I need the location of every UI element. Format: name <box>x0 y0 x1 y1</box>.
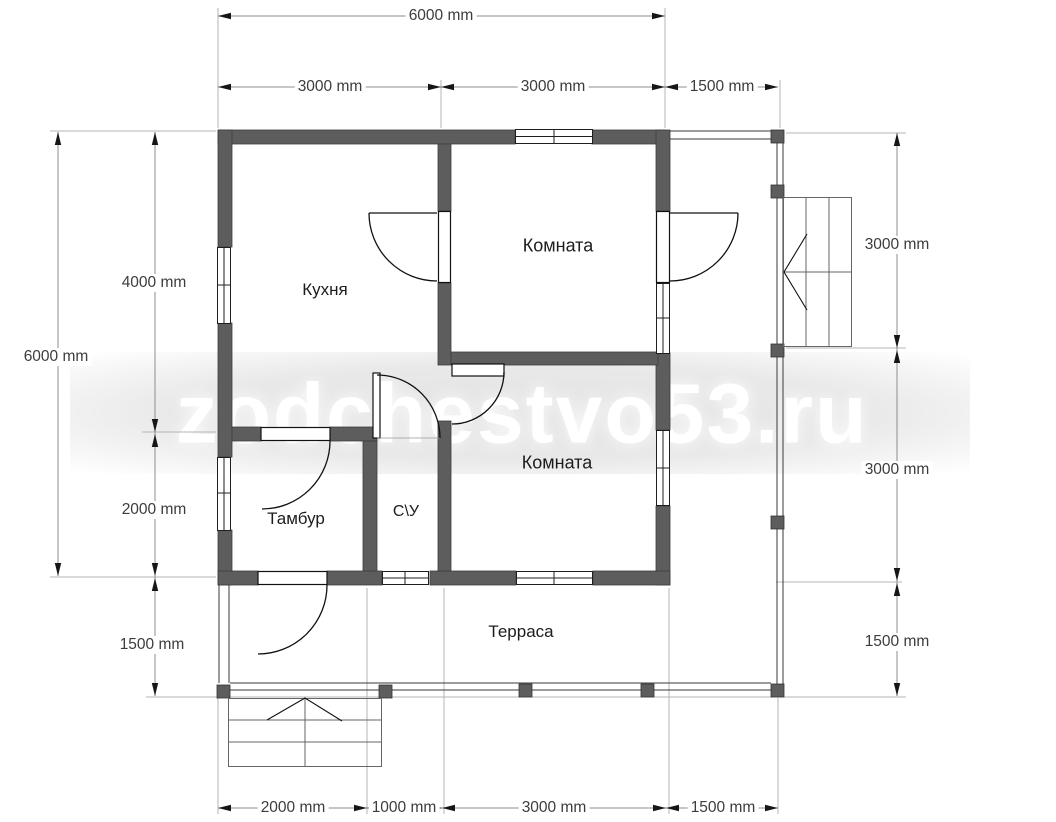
window-bathroom-bottom <box>382 571 429 585</box>
window-bedroom-mid-bottom <box>516 571 593 585</box>
window-bedroom-top <box>515 129 593 144</box>
dim-top-total: 6000 mm <box>406 7 477 25</box>
window-kitchen-left <box>217 247 231 324</box>
dim-right-seg2: 3000 mm <box>862 461 933 479</box>
dim-left-seg1: 4000 mm <box>119 274 190 292</box>
window-bedroom-mid-right <box>656 430 670 506</box>
dim-bottom-seg4: 1500 mm <box>688 799 759 817</box>
dim-bottom-seg3: 3000 mm <box>519 799 590 817</box>
door-bathroom <box>373 373 440 438</box>
door-kitchen-bedroom-top <box>369 212 451 283</box>
door-bedroom-top-terrace <box>657 212 739 283</box>
dim-left-total: 6000 mm <box>21 348 92 366</box>
room-label-bedroom-top: Комната <box>523 236 593 257</box>
dim-bottom-seg1: 2000 mm <box>258 799 329 817</box>
room-label-kitchen: Кухня <box>302 280 348 300</box>
stairs-bottom <box>228 698 382 767</box>
floor-plan-page: zodchestvo53.ru <box>0 0 1056 822</box>
door-kitchen-bedroom-mid <box>452 364 504 424</box>
dim-right-seg1: 3000 mm <box>862 236 933 254</box>
dim-bottom-seg2: 1000 mm <box>369 799 440 817</box>
door-vestibule-terrace <box>258 572 327 655</box>
room-label-bedroom-mid: Комната <box>522 453 592 474</box>
room-label-vestibule: Тамбур <box>267 509 325 529</box>
dim-top-seg2: 3000 mm <box>518 78 589 96</box>
dim-left-seg3: 1500 mm <box>117 636 188 654</box>
room-label-bathroom: С\У <box>393 503 419 521</box>
dim-right-seg3: 1500 mm <box>862 633 933 651</box>
window-bedroom-top-right <box>656 283 670 354</box>
dim-left-seg2: 2000 mm <box>119 501 190 519</box>
door-kitchen-vestibule <box>261 428 330 510</box>
terrace-posts <box>217 130 784 698</box>
room-label-terrace: Терраса <box>488 622 553 642</box>
window-vestibule-left <box>217 457 231 531</box>
dim-top-seg1: 3000 mm <box>295 78 366 96</box>
stairs-right <box>783 197 852 347</box>
terrace-outline <box>219 131 783 690</box>
dim-top-seg3: 1500 mm <box>687 78 758 96</box>
floor-plan-drawing <box>0 0 1056 822</box>
